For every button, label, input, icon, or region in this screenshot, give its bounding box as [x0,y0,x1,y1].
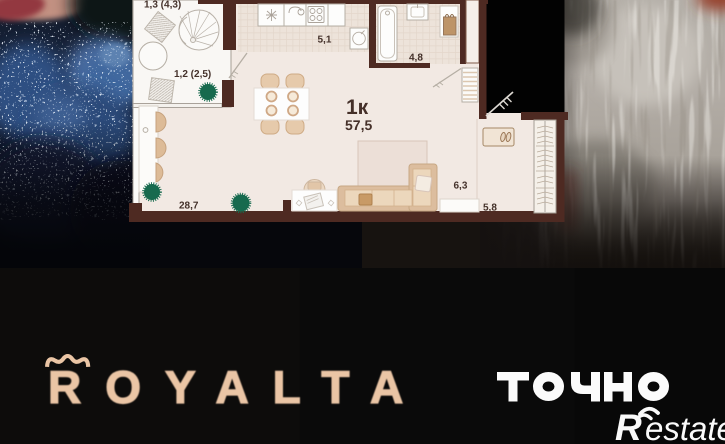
svg-text:1,3 (4,3): 1,3 (4,3) [144,0,181,11]
svg-text:R: R [615,407,642,444]
svg-text:1,2 (2,5): 1,2 (2,5) [174,69,211,80]
svg-text:5,8: 5,8 [483,203,497,214]
svg-text:estate: estate [645,410,725,444]
svg-text:4,8: 4,8 [409,53,423,64]
svg-text:6,3: 6,3 [454,181,468,192]
svg-text:5,1: 5,1 [318,35,332,46]
svg-text:28,7: 28,7 [179,201,199,212]
svg-text:1к: 1к [346,96,369,119]
svg-text:57,5: 57,5 [345,117,372,133]
